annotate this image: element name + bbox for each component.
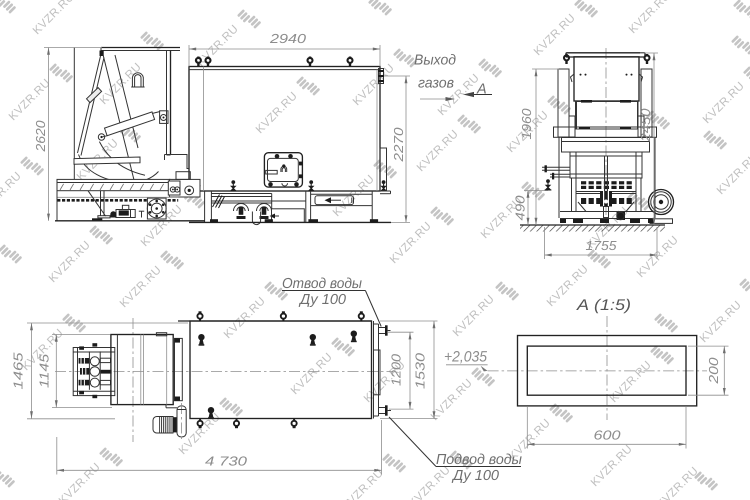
svg-text:1960: 1960	[519, 108, 534, 140]
svg-text:A: A	[476, 82, 487, 98]
svg-text:Отвод воды: Отвод воды	[282, 276, 362, 292]
svg-text:А (1:5): А (1:5)	[576, 297, 631, 314]
svg-text:1530: 1530	[413, 352, 428, 389]
svg-text:1200: 1200	[389, 353, 404, 386]
svg-text:Подвод воды: Подвод воды	[436, 452, 522, 468]
svg-text:Выход: Выход	[414, 53, 456, 69]
svg-text:490: 490	[513, 195, 528, 221]
svg-text:2450: 2450	[638, 108, 653, 143]
svg-text:4 730: 4 730	[205, 454, 248, 469]
svg-text:газов: газов	[418, 76, 454, 92]
svg-text:200: 200	[706, 357, 721, 385]
svg-text:1465: 1465	[11, 352, 26, 390]
svg-text:Ду 100: Ду 100	[298, 292, 346, 308]
svg-text:2620: 2620	[33, 120, 48, 153]
svg-text:1755: 1755	[586, 238, 618, 253]
svg-text:Ду 100: Ду 100	[451, 468, 499, 484]
svg-text:1145: 1145	[37, 353, 52, 388]
svg-text:+2,035: +2,035	[444, 349, 488, 366]
svg-text:600: 600	[594, 428, 622, 443]
svg-text:2270: 2270	[391, 127, 406, 163]
svg-text:2940: 2940	[269, 31, 307, 46]
